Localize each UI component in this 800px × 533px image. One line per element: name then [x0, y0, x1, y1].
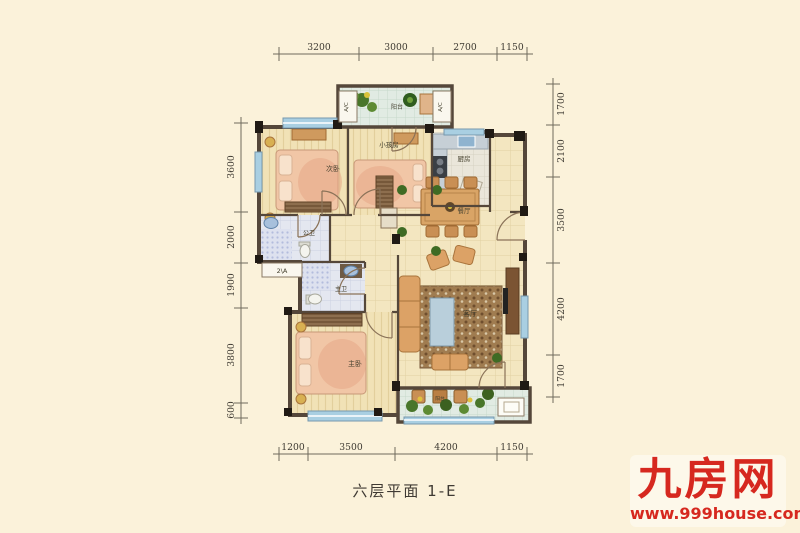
label-ac-left: A/C	[344, 102, 350, 112]
dimension-left: 3600 2000 1900 3800 600	[226, 117, 248, 424]
label-balcony-top: 阳台	[391, 103, 403, 111]
dimension-right: 1700 2100 3500 4200 1700	[546, 78, 567, 403]
entry-floor	[490, 135, 525, 212]
kitchen-window	[444, 129, 484, 135]
label-bedroom2: 次卧	[326, 164, 340, 173]
logo-website-text: www.999house.com	[630, 504, 786, 523]
living-window	[521, 296, 528, 338]
tv-icon	[503, 288, 508, 314]
bedroom2-shelf	[285, 202, 331, 212]
coffee-table-icon	[430, 298, 454, 346]
kids-wardrobe	[376, 176, 393, 208]
guest-bath-shower	[259, 229, 292, 262]
label-ac-platform: 2\A	[277, 267, 288, 275]
label-kitchen: 厨房	[458, 154, 471, 163]
master-bay-window	[308, 411, 382, 421]
label-master-bedroom: 主卧	[348, 359, 362, 368]
master-wardrobe	[302, 313, 362, 326]
dim-top-1: 3200	[307, 42, 331, 53]
label-master-bath: 主卫	[335, 285, 347, 293]
dim-top-4: 1150	[500, 42, 524, 53]
label-living-room: 客厅	[463, 309, 477, 318]
balcony-glazing	[404, 417, 494, 424]
toilet-icon	[309, 294, 322, 304]
dim-bottom-3: 4200	[434, 442, 458, 453]
label-ac-right: A/C	[438, 102, 444, 112]
hall-cabinet	[381, 208, 397, 228]
dim-bottom-4: 1150	[500, 442, 524, 453]
dimension-bottom: 1200 3500 4200 1150	[273, 442, 533, 461]
site-logo: 九房网 www.999house.com	[630, 455, 786, 527]
sink-icon	[344, 266, 358, 276]
master-bath-shower	[301, 263, 330, 290]
toilet-icon	[300, 245, 310, 258]
dim-bottom-2: 3500	[339, 442, 363, 453]
dimension-top: 3200 3000 2700 1150	[273, 42, 533, 61]
bedroom2-window	[255, 152, 262, 192]
sink-icon	[264, 218, 278, 229]
dim-right-1: 1700	[556, 92, 567, 116]
dim-left-1: 3600	[226, 155, 237, 179]
dim-top-2: 3000	[384, 42, 408, 53]
dim-top-3: 2700	[453, 42, 477, 53]
bedroom2-dresser	[292, 129, 326, 140]
label-kids-room: 小孩房	[379, 140, 399, 149]
page: 阳台 A/C A/C 次卧 小孩房 厨房 餐厅 公卫 主卫 主卧 客厅 阳台 2…	[0, 0, 800, 533]
label-guest-bath: 公卫	[303, 230, 315, 237]
dim-left-4: 3800	[226, 343, 237, 367]
dim-bottom-1: 1200	[281, 442, 305, 453]
floor-drain-box	[498, 398, 524, 416]
dim-right-3: 3500	[556, 208, 567, 232]
label-dining: 餐厅	[458, 206, 472, 215]
dim-right-4: 4200	[556, 297, 567, 321]
logo-brand-text: 九房网	[630, 457, 786, 503]
dim-right-5: 1700	[556, 364, 567, 388]
bay-window	[283, 118, 337, 128]
dim-left-2: 2000	[226, 225, 237, 249]
dim-left-5: 600	[226, 401, 237, 419]
dim-right-2: 2100	[556, 139, 567, 163]
dim-left-3: 1900	[226, 273, 237, 297]
plan-caption: 六层平面 1-E	[320, 480, 490, 501]
label-balcony-bottom: 阳台	[435, 395, 445, 402]
